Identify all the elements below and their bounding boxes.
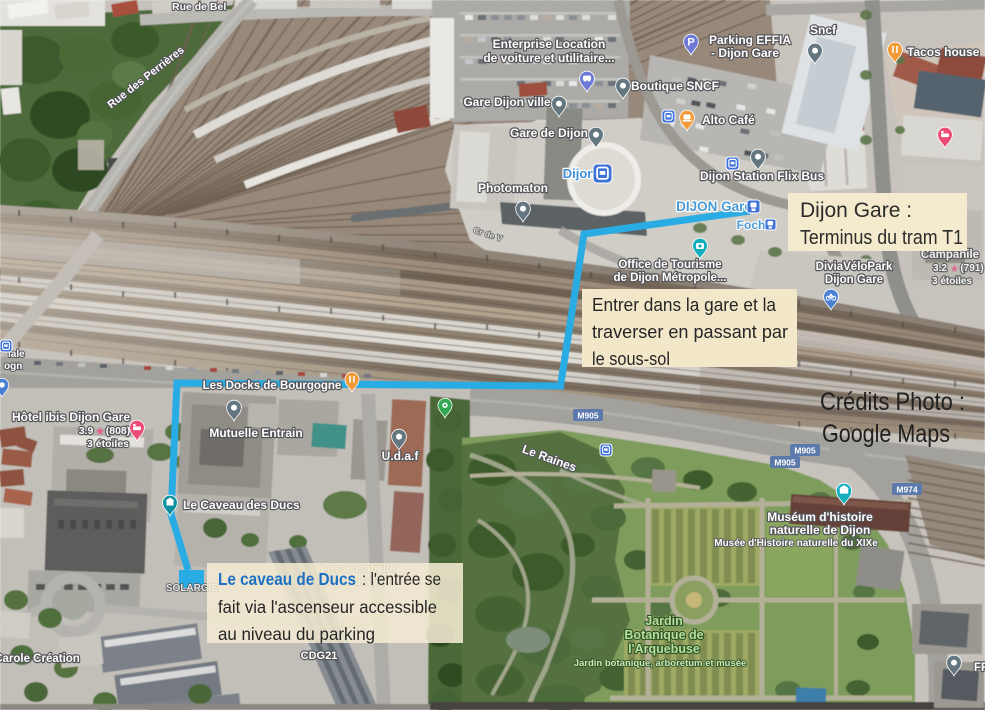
svg-text:Enterprise Location: Enterprise Location (493, 37, 606, 51)
svg-text:(791): (791) (960, 263, 983, 274)
svg-text:Gare Dijon ville: Gare Dijon ville (463, 95, 551, 109)
svg-text:: l'entrée se: : l'entrée se (362, 569, 441, 589)
svg-text:M905: M905 (774, 458, 796, 468)
svg-text:Office de Tourisme: Office de Tourisme (618, 259, 721, 271)
svg-text:Musée d'Histoire naturelle du: Musée d'Histoire naturelle du XIXe (714, 538, 878, 549)
svg-text:FR: FR (974, 662, 985, 674)
svg-text:Les Docks de Bourgogne: Les Docks de Bourgogne (203, 380, 342, 392)
svg-text:Jardin: Jardin (645, 614, 683, 628)
svg-text:Mutuelle Entrain: Mutuelle Entrain (209, 426, 302, 440)
svg-text:Dijon: Dijon (563, 166, 596, 181)
svg-text:3.2: 3.2 (933, 263, 947, 274)
svg-text:le sous-sol: le sous-sol (592, 349, 670, 369)
svg-text:l'Arquebuse: l'Arquebuse (628, 642, 700, 656)
svg-text:DiviaVéloPark: DiviaVéloPark (816, 261, 893, 273)
svg-text:de Dijon Métropole...: de Dijon Métropole... (613, 272, 726, 284)
svg-text:Dijon Gare: Dijon Gare (825, 274, 883, 286)
svg-text:de voiture et utilitaire...: de voiture et utilitaire... (483, 51, 614, 65)
svg-text:- Dijon Gare: - Dijon Gare (711, 46, 779, 60)
svg-text:M905: M905 (577, 411, 599, 421)
svg-text:au niveau du parking: au niveau du parking (218, 624, 375, 644)
svg-text:Le caveau de Ducs: Le caveau de Ducs (218, 569, 356, 589)
svg-text:P: P (687, 37, 694, 49)
svg-text:DIJON Gare: DIJON Gare (676, 199, 752, 214)
svg-text:3 étoiles: 3 étoiles (87, 438, 129, 450)
svg-text:U.d.a.f: U.d.a.f (382, 449, 420, 463)
svg-text:Dijon Station Flix Bus: Dijon Station Flix Bus (700, 169, 824, 183)
svg-text:CDG21: CDG21 (301, 650, 338, 662)
svg-text:M974: M974 (896, 485, 918, 495)
svg-text:Gare de Dijon: Gare de Dijon (510, 126, 588, 140)
svg-text:Jardin botanique, arboretum et: Jardin botanique, arboretum et musée (574, 658, 747, 669)
svg-text:Foch: Foch (737, 218, 766, 232)
svg-text:Muséum d'histoire: Muséum d'histoire (767, 510, 873, 524)
svg-text:Crédits Photo :: Crédits Photo : (820, 388, 965, 416)
svg-text:Photomaton: Photomaton (478, 181, 548, 195)
svg-text:Rue de Bel: Rue de Bel (172, 1, 226, 13)
svg-text:Entrer dans la gare et la: Entrer dans la gare et la (592, 295, 777, 315)
svg-text:Le Caveau des Ducs: Le Caveau des Ducs (183, 498, 300, 512)
svg-text:Terminus du tram T1: Terminus du tram T1 (800, 227, 963, 249)
svg-text:traverser en passant par: traverser en passant par (592, 322, 788, 342)
svg-text:Sncf: Sncf (810, 23, 837, 37)
svg-text:Parking EFFIA: Parking EFFIA (709, 33, 791, 47)
svg-text:3.9: 3.9 (79, 425, 94, 437)
svg-text:M905: M905 (794, 446, 816, 456)
svg-text:★: ★ (95, 426, 105, 438)
svg-text:fait via l'ascenseur accessib: fait via l'ascenseur accessible (218, 597, 437, 617)
svg-text:(808): (808) (106, 425, 131, 437)
svg-text:Dijon Gare :: Dijon Gare : (800, 199, 912, 222)
svg-text:3 étoiles: 3 étoiles (932, 276, 972, 287)
svg-text:Botanique de: Botanique de (624, 628, 703, 642)
svg-text:Google Maps: Google Maps (822, 420, 950, 448)
svg-text:Tacos house: Tacos house (907, 45, 980, 59)
svg-text:naturelle de Dijon: naturelle de Dijon (770, 523, 871, 537)
svg-text:Hôtel ibis Dijon Gare: Hôtel ibis Dijon Gare (12, 410, 130, 424)
svg-text:Alto Café: Alto Café (702, 113, 755, 127)
svg-text:Carole Création: Carole Création (0, 653, 80, 665)
svg-text:ogn: ogn (4, 361, 22, 372)
svg-text:Boutique SNCF: Boutique SNCF (631, 79, 719, 93)
svg-text:★: ★ (950, 264, 959, 275)
